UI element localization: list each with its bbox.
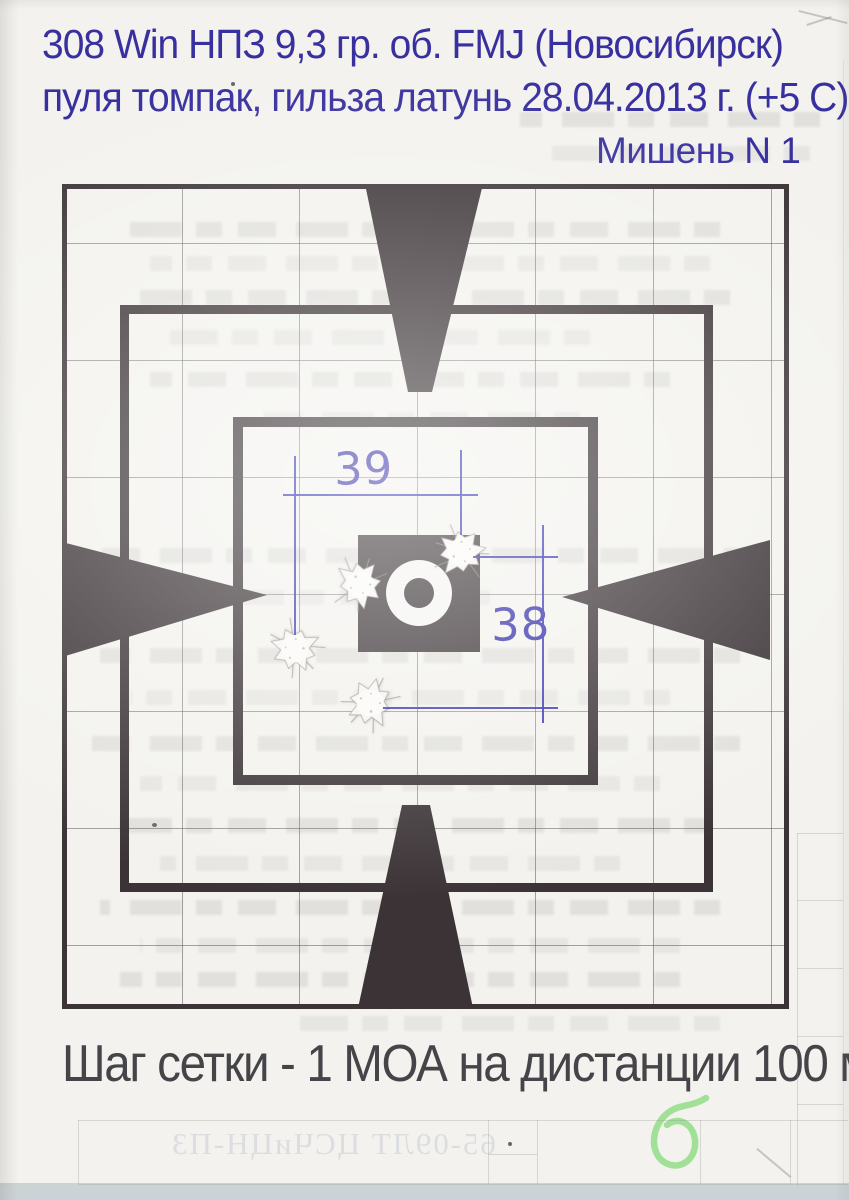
measurement-39-label: 39 bbox=[333, 441, 394, 496]
dimension-ref-top-hole bbox=[473, 556, 558, 558]
scanner-edge bbox=[0, 1187, 849, 1200]
bleedthrough-doc-number: 65-09ЛТ ЦСЧиЦН-ПЗ bbox=[118, 1126, 548, 1162]
header-line-2: пуля томпак, гильза латунь 28.04.2013 г.… bbox=[42, 71, 848, 124]
paper-speck bbox=[231, 82, 235, 86]
aiming-wedge-bottom bbox=[358, 805, 473, 1008]
aiming-wedge-left bbox=[62, 542, 267, 657]
fold-crease bbox=[757, 1148, 792, 1177]
aiming-wedge-right bbox=[562, 540, 770, 660]
dimension-ref-right bbox=[460, 450, 462, 535]
shooting-target: 39 38 bbox=[62, 184, 789, 1009]
paper-speck bbox=[508, 1142, 512, 1146]
target-number-label: Мишень N 1 bbox=[596, 130, 800, 172]
aiming-wedge-top bbox=[365, 184, 483, 392]
center-dot bbox=[404, 578, 434, 608]
load-info-header: 308 Win НПЗ 9,3 гр. об. FMJ (Новосибирск… bbox=[42, 18, 848, 124]
scanned-target-sheet: 308 Win НПЗ 9,3 гр. об. FMJ (Новосибирск… bbox=[0, 0, 849, 1200]
grid-pitch-caption: Шаг сетки - 1 МОА на дистанции 100 м bbox=[62, 1034, 849, 1094]
measurement-38-label: 38 bbox=[490, 597, 551, 652]
paper-speck bbox=[152, 823, 157, 827]
header-line-1: 308 Win НПЗ 9,3 гр. об. FMJ (Новосибирск… bbox=[42, 18, 848, 71]
dimension-ref-left bbox=[294, 456, 296, 635]
dimension-ref-bottom-hole bbox=[383, 707, 558, 709]
